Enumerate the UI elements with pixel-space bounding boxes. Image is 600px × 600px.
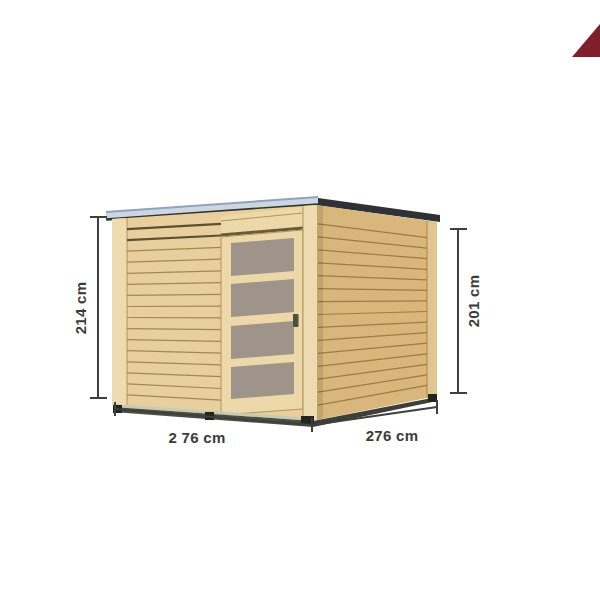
dimension-height-right: 201 cm xyxy=(450,229,482,393)
glazed-door xyxy=(221,230,303,415)
dim-width-front-label: 2 76 cm xyxy=(168,429,225,446)
door-glass-pane-1 xyxy=(231,238,294,276)
corner-shadow xyxy=(317,205,323,420)
front-left-corner-trim xyxy=(112,218,127,406)
door-handle xyxy=(293,314,299,327)
foundation-foot-4 xyxy=(428,394,437,402)
cabin-product-render: 214 cm 201 cm 2 76 cm 276 cm xyxy=(0,0,600,600)
door-glass-pane-3 xyxy=(231,321,294,359)
dim-height-left-label: 214 cm xyxy=(72,282,89,335)
dimension-height-left: 214 cm xyxy=(72,217,108,398)
corner-triangle-badge-icon xyxy=(572,24,600,57)
door-glass-pane-2 xyxy=(231,279,294,317)
product-image-canvas: 214 cm 201 cm 2 76 cm 276 cm xyxy=(0,0,600,600)
front-wall xyxy=(112,205,317,421)
plank-gap-line xyxy=(318,301,427,302)
dim-height-right-label: 201 cm xyxy=(465,275,482,328)
right-side-wall xyxy=(317,205,437,420)
door-glass-pane-4 xyxy=(231,362,294,399)
front-right-corner-trim xyxy=(303,205,317,421)
dim-depth-side-label: 276 cm xyxy=(366,427,419,444)
side-right-end-trim xyxy=(427,221,437,398)
